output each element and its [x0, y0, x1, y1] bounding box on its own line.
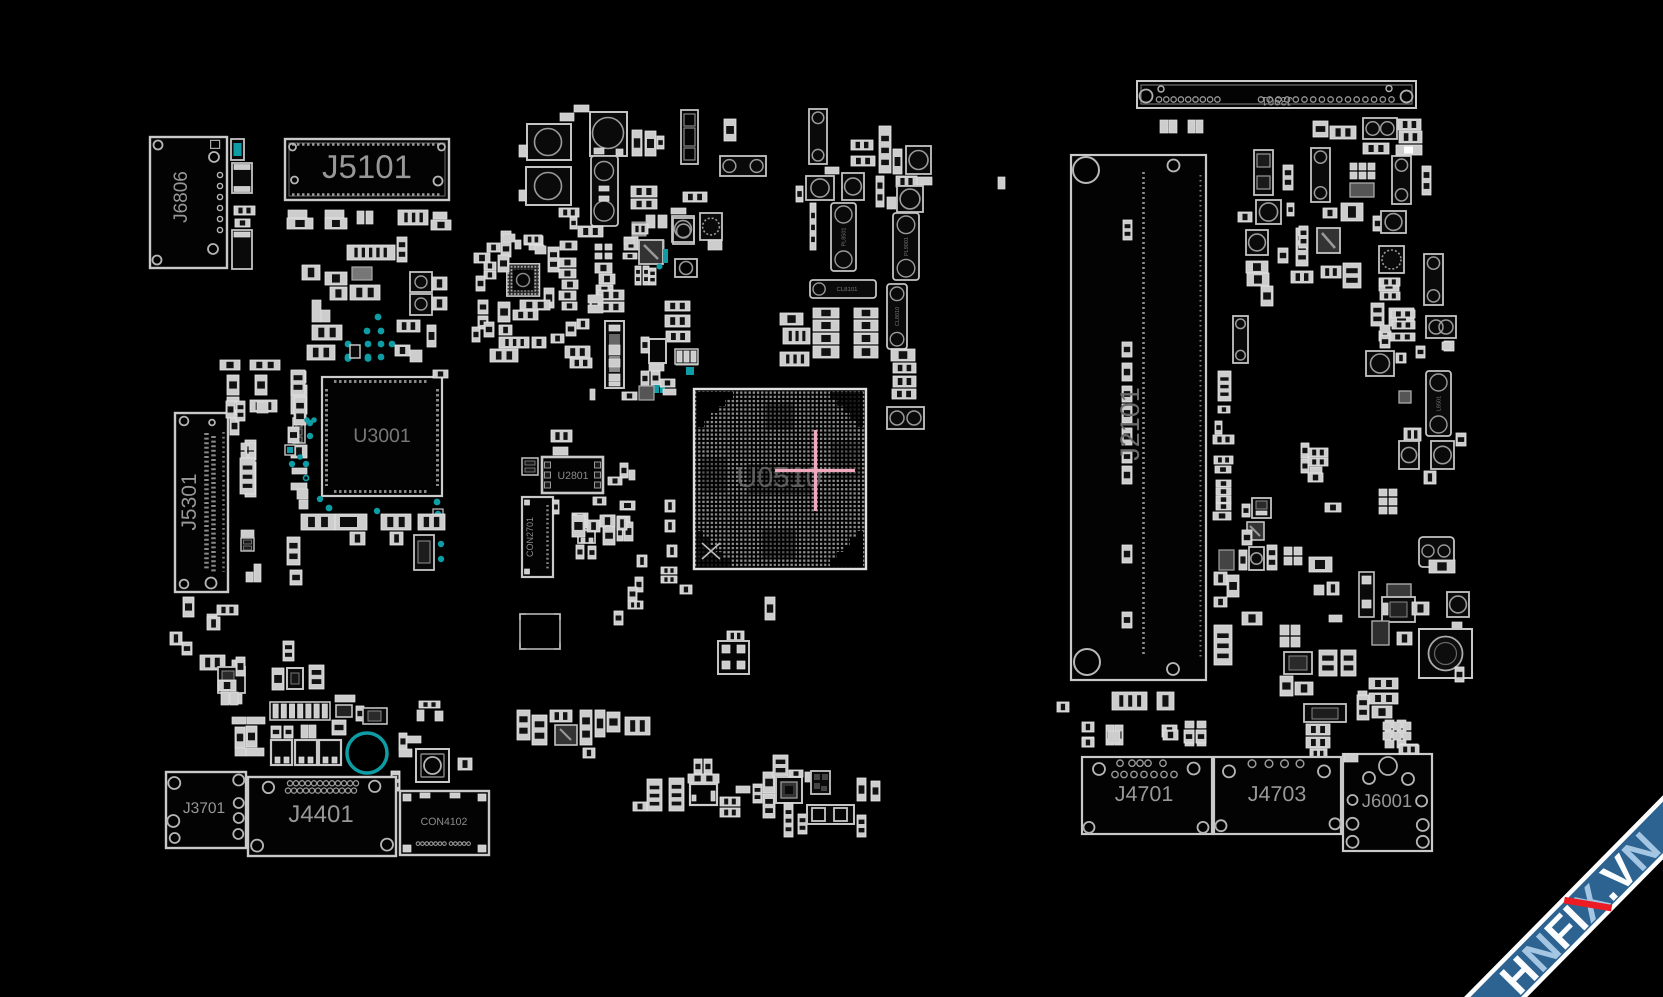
- svg-text:CL8010: CL8010: [895, 307, 901, 326]
- svg-text:U0510: U0510: [736, 462, 821, 494]
- svg-text:J4703: J4703: [1248, 782, 1307, 806]
- svg-text:J4701: J4701: [1115, 782, 1174, 806]
- svg-text:CON4102: CON4102: [421, 816, 468, 828]
- svg-text:U2801: U2801: [558, 470, 589, 482]
- svg-text:L8501: L8501: [1437, 396, 1443, 411]
- svg-text:J2101: J2101: [1115, 387, 1145, 461]
- svg-text:PL9001: PL9001: [904, 237, 910, 256]
- svg-text:PL8501: PL8501: [842, 228, 848, 247]
- svg-text:J5101: J5101: [322, 148, 412, 185]
- svg-text:J3701: J3701: [183, 800, 225, 817]
- svg-text:U3001: U3001: [353, 425, 411, 447]
- svg-text:CL8101: CL8101: [836, 287, 858, 293]
- svg-text:J5301: J5301: [178, 473, 201, 530]
- svg-text:J4401: J4401: [288, 801, 353, 828]
- svg-text:J3901: J3901: [1261, 94, 1292, 106]
- svg-text:CON2701: CON2701: [525, 517, 535, 557]
- svg-text:J6001: J6001: [1362, 790, 1412, 811]
- svg-text:J6806: J6806: [171, 171, 192, 223]
